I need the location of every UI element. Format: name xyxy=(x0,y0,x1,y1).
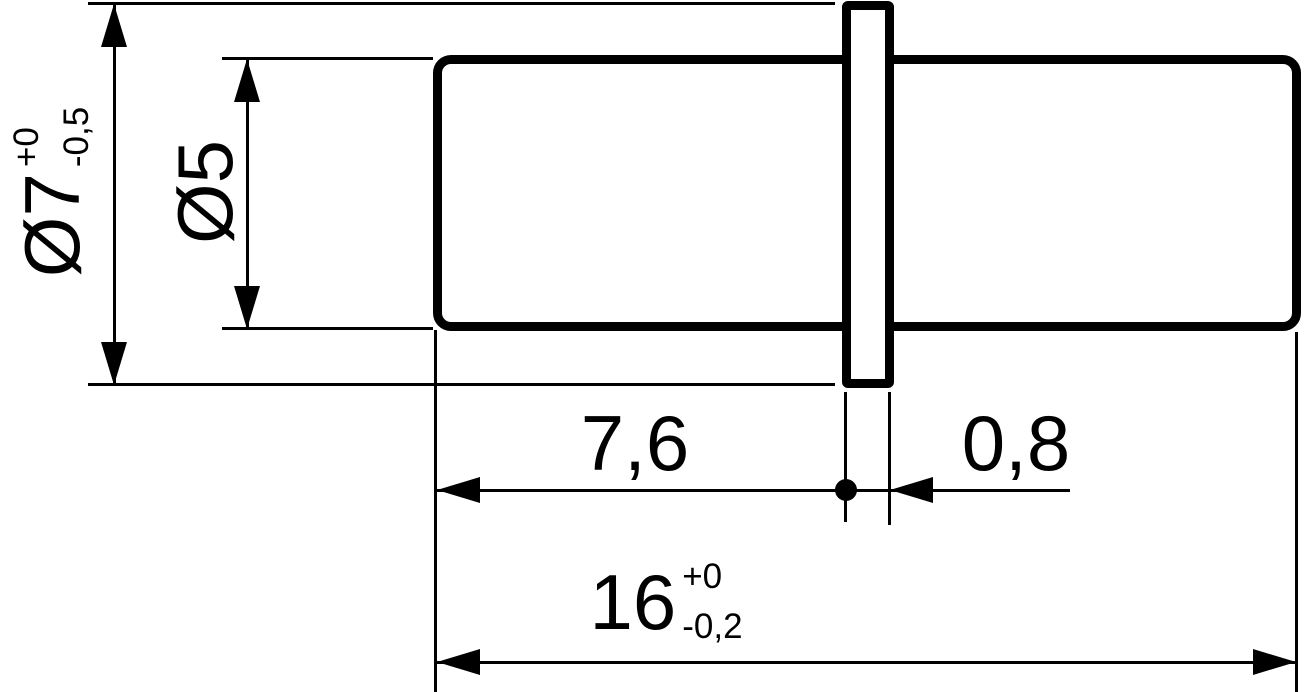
flange-right-extension-line xyxy=(888,392,891,525)
right-end-extension-line xyxy=(1295,332,1298,692)
length-to-flange-value: 7,6 xyxy=(581,403,689,483)
shaft-diameter-arrowhead-top xyxy=(234,59,260,102)
length-to-flange-label: 7,6 xyxy=(535,403,735,483)
overall-length-value: 16 xyxy=(589,562,676,642)
overall-length-dimension-line xyxy=(436,661,1296,664)
flange-diameter-extension-line-bottom xyxy=(88,383,835,386)
flange-diameter-label: Ø7 +0 -0,5 xyxy=(0,82,107,302)
flange-diameter-tolerance-upper: +0 xyxy=(2,107,52,167)
technical-drawing: Ø7 +0 -0,5 Ø5 7,6 0,8 16 +0 -0,2 xyxy=(0,0,1306,692)
flange-diameter-extension-line-top xyxy=(88,2,835,5)
shaft-diameter-arrowhead-bottom xyxy=(234,286,260,329)
length-to-flange-origin-dot xyxy=(835,479,857,501)
flange-diameter-tolerance-lower: -0,5 xyxy=(52,107,102,167)
flange-diameter-arrowhead-top xyxy=(101,4,127,47)
length-to-flange-arrowhead xyxy=(437,477,480,503)
shaft-diameter-label: Ø5 xyxy=(160,127,250,257)
overall-length-arrowhead-left xyxy=(437,649,480,675)
shaft-diameter-value: Ø5 xyxy=(165,140,245,244)
overall-length-tolerance-upper: +0 xyxy=(682,552,742,602)
left-end-extension-line xyxy=(434,330,437,692)
overall-length-tolerance-lower: -0,2 xyxy=(682,602,742,652)
flange-thickness-label: 0,8 xyxy=(916,403,1116,483)
overall-length-tolerance: +0 -0,2 xyxy=(682,552,742,652)
overall-length-arrowhead-right xyxy=(1253,649,1296,675)
flange-diameter-tolerance: +0 -0,5 xyxy=(2,107,102,167)
overall-length-label: 16 +0 -0,2 xyxy=(536,556,796,648)
flange-thickness-value: 0,8 xyxy=(962,403,1070,483)
length-to-flange-dimension-line xyxy=(435,489,889,492)
flange-diameter-dimension-line xyxy=(113,3,116,385)
flange-diameter-value: Ø7 xyxy=(12,173,92,277)
flange-left-extension-line xyxy=(844,392,847,522)
flange-diameter-arrowhead-bottom xyxy=(101,342,127,385)
pin-flange-outline xyxy=(842,1,894,388)
